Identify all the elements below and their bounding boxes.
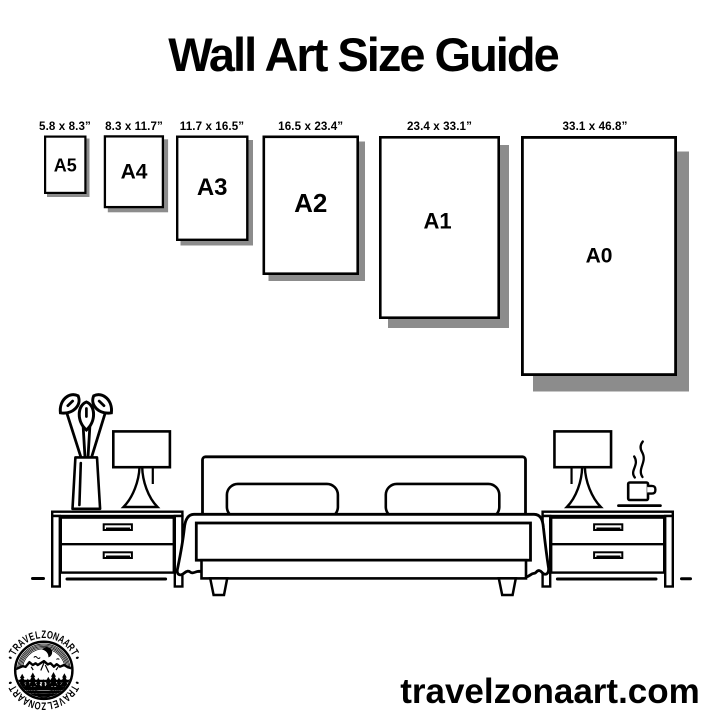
svg-text:A0: A0 bbox=[586, 245, 613, 268]
svg-text:A4: A4 bbox=[121, 161, 148, 184]
svg-text:A3: A3 bbox=[197, 174, 228, 201]
svg-text:33.1 x 46.8”: 33.1 x 46.8” bbox=[562, 120, 627, 133]
svg-text:A1: A1 bbox=[423, 209, 451, 234]
svg-text:5.8 x 8.3”: 5.8 x 8.3” bbox=[39, 120, 91, 133]
svg-text:11.7 x 16.5”: 11.7 x 16.5” bbox=[180, 120, 244, 133]
svg-text:16.5 x 23.4”: 16.5 x 23.4” bbox=[278, 120, 343, 133]
svg-text:Wall Art Size Guide: Wall Art Size Guide bbox=[168, 28, 558, 81]
svg-text:A5: A5 bbox=[54, 156, 77, 176]
svg-text:A2: A2 bbox=[294, 188, 327, 218]
svg-text:8.3 x 11.7”: 8.3 x 11.7” bbox=[105, 120, 163, 133]
svg-text:23.4 x 33.1”: 23.4 x 33.1” bbox=[407, 120, 472, 133]
svg-text:travelzonaart.com: travelzonaart.com bbox=[400, 672, 700, 711]
